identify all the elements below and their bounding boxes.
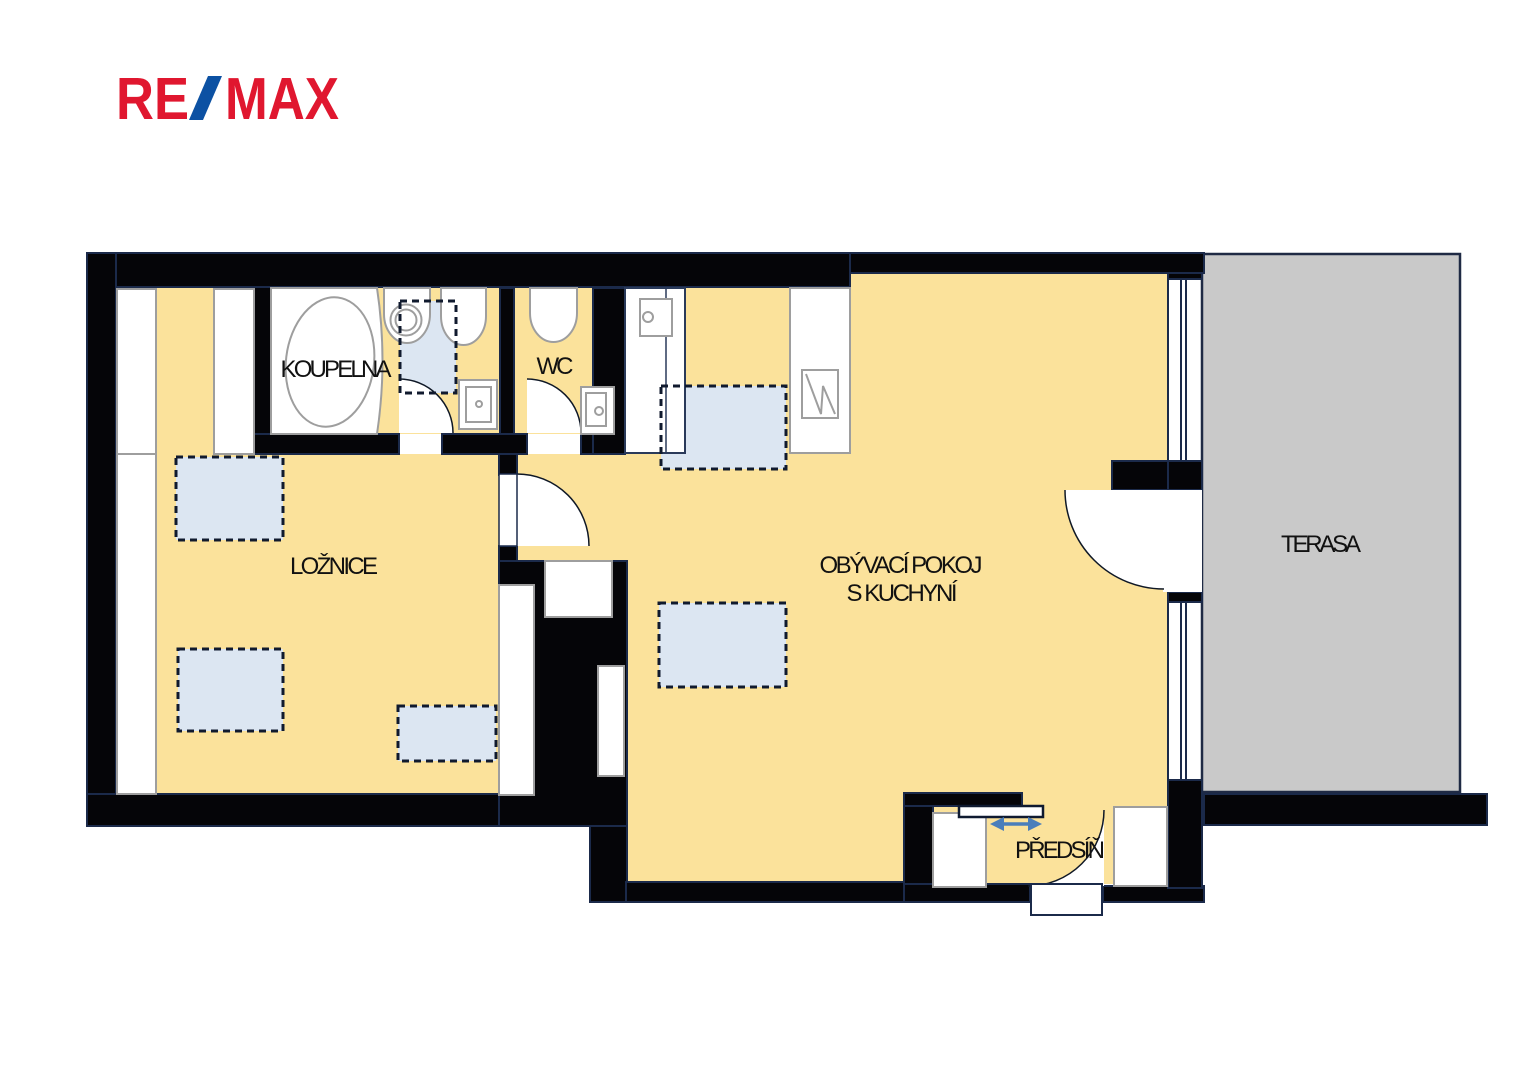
svg-text:S KUCHYNÍ: S KUCHYNÍ: [847, 580, 958, 607]
svg-text:MAX: MAX: [225, 66, 339, 132]
svg-text:WC: WC: [537, 353, 574, 380]
svg-text:KOUPELNA: KOUPELNA: [281, 356, 392, 383]
svg-text:LOŽNICE: LOŽNICE: [290, 553, 378, 580]
svg-text:PŘEDSÍŇ: PŘEDSÍŇ: [1015, 837, 1105, 864]
svg-text:RE: RE: [116, 66, 189, 132]
svg-text:TERASA: TERASA: [1281, 531, 1361, 558]
svg-text:OBÝVACÍ POKOJ: OBÝVACÍ POKOJ: [820, 552, 983, 579]
